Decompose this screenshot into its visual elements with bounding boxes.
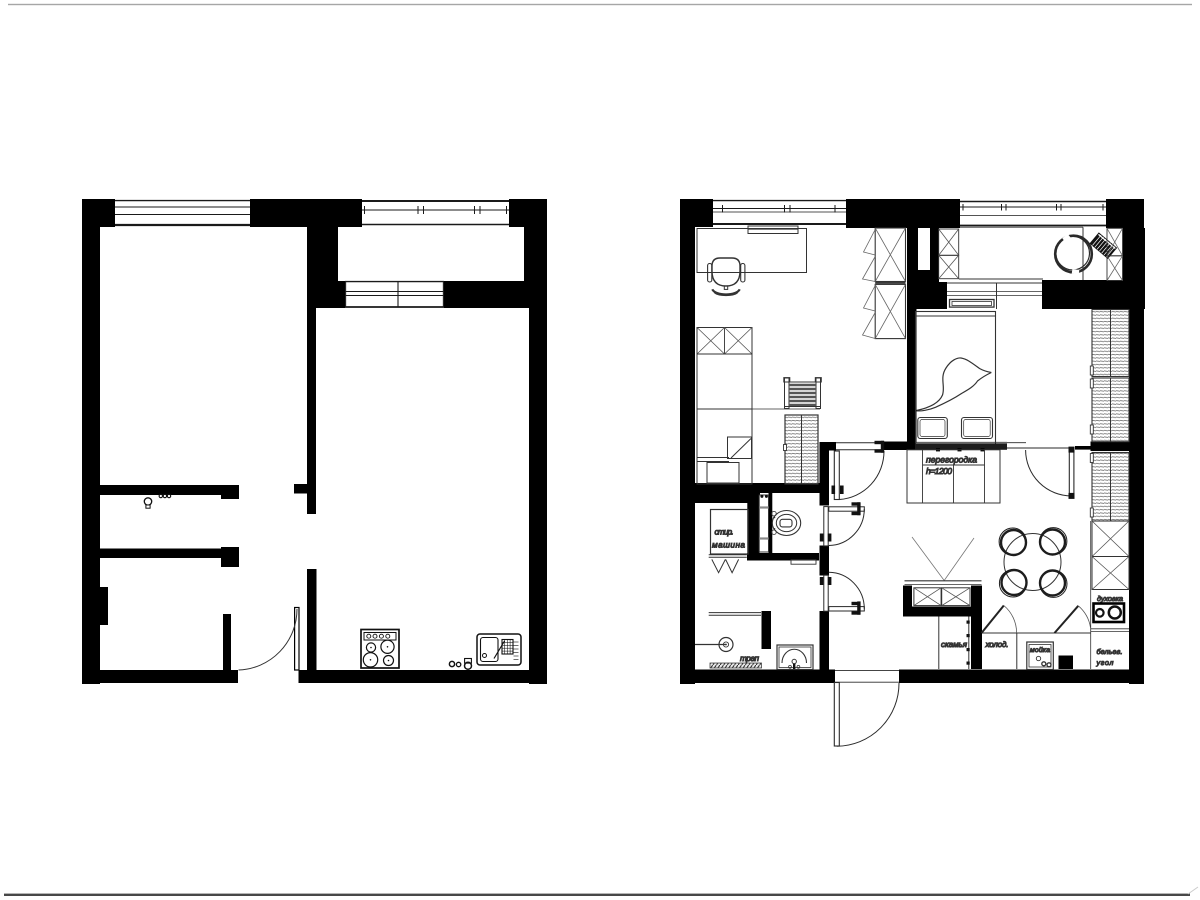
svg-text:мойка: мойка bbox=[1030, 646, 1050, 654]
svg-text:трап: трап bbox=[740, 654, 759, 663]
svg-text:скамья: скамья bbox=[941, 640, 968, 649]
svg-text:бельев.: бельев. bbox=[1096, 647, 1122, 656]
svg-text:машина: машина bbox=[712, 541, 745, 550]
svg-text:h=1200: h=1200 bbox=[926, 466, 952, 476]
svg-text:холод.: холод. bbox=[984, 640, 1008, 649]
svg-text:стир.: стир. bbox=[714, 528, 733, 537]
svg-text:перегородка: перегородка bbox=[926, 455, 977, 465]
svg-text:угол: угол bbox=[1095, 658, 1113, 667]
svg-text:духовка: духовка bbox=[1097, 594, 1123, 603]
